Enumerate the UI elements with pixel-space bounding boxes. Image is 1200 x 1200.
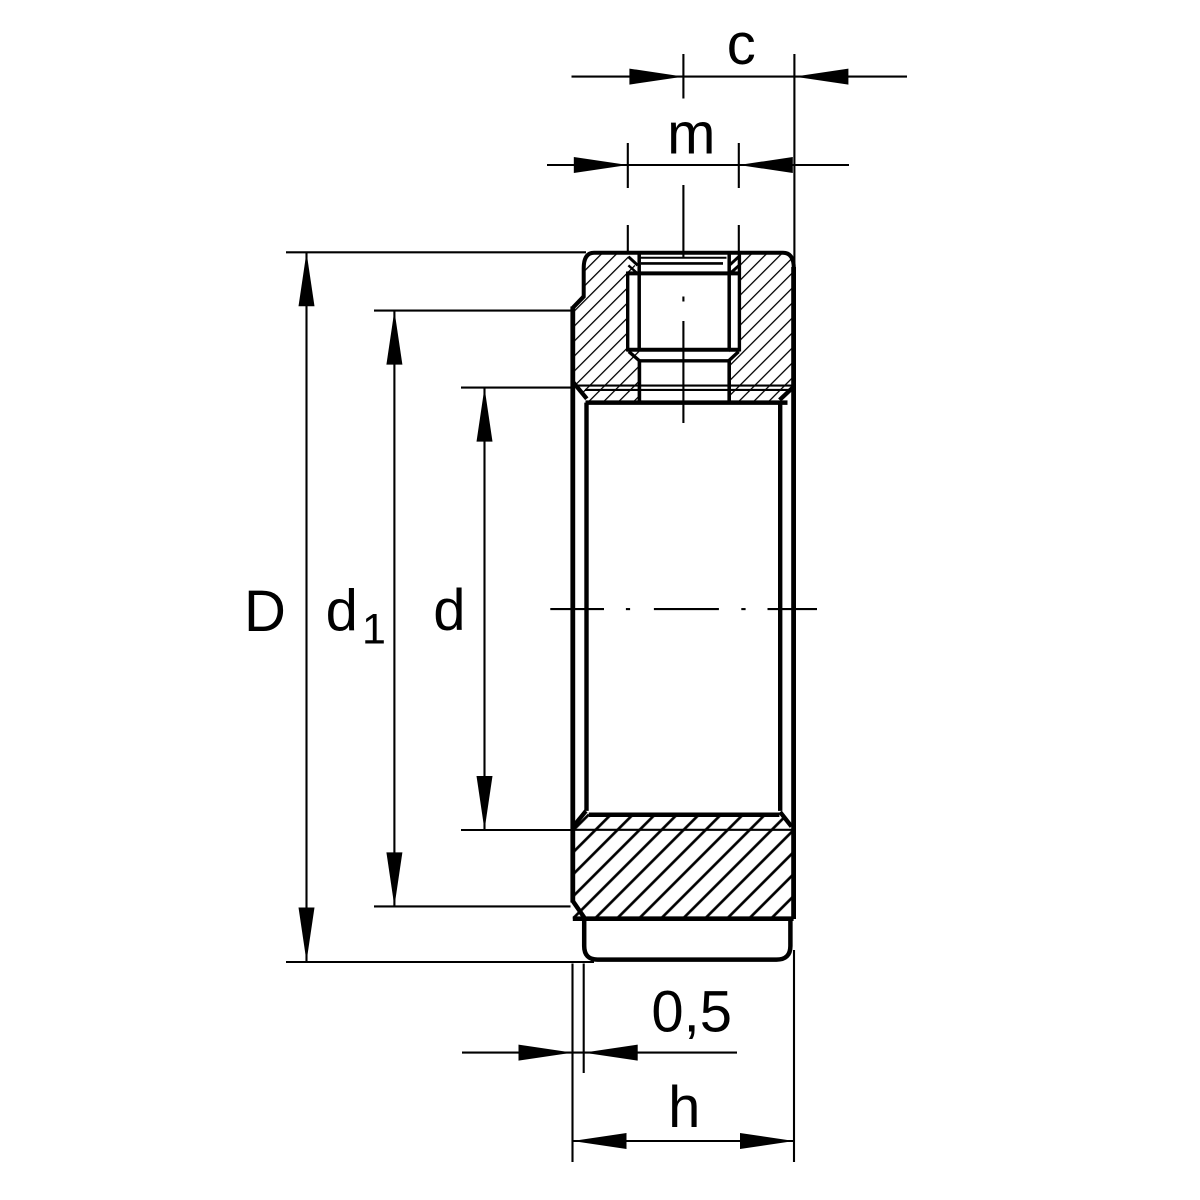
- svg-text:1: 1: [362, 605, 386, 653]
- svg-text:d: d: [433, 578, 465, 643]
- svg-text:0,5: 0,5: [651, 979, 732, 1044]
- svg-text:d: d: [326, 579, 358, 644]
- svg-text:h: h: [668, 1075, 700, 1140]
- svg-text:c: c: [727, 12, 756, 77]
- svg-text:m: m: [667, 101, 715, 166]
- svg-text:D: D: [244, 579, 286, 644]
